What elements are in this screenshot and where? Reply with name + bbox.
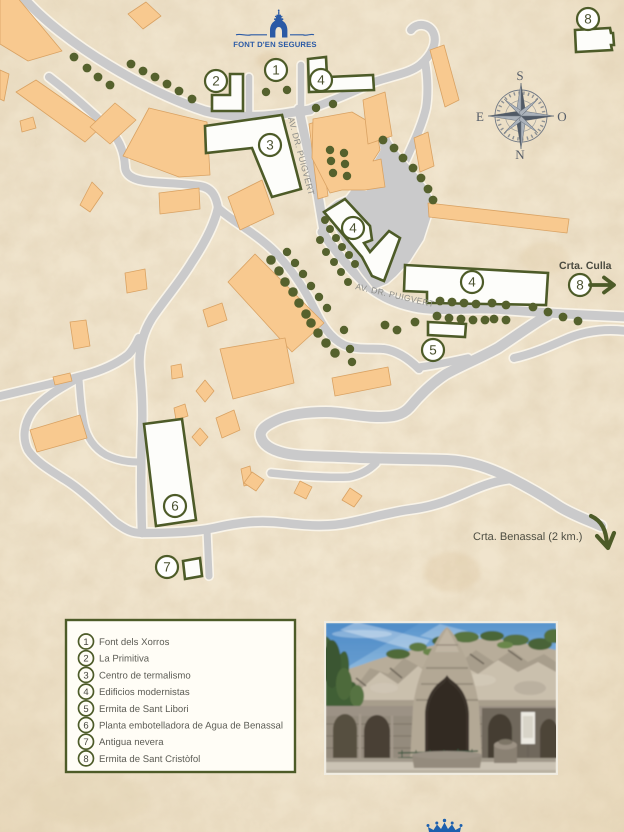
svg-text:La Primitiva: La Primitiva: [99, 654, 150, 665]
svg-text:Planta embotelladora de Agua d: Planta embotelladora de Agua de Benassal: [99, 721, 283, 732]
svg-text:Crta. Culla: Crta. Culla: [559, 260, 612, 272]
svg-text:8: 8: [576, 278, 584, 293]
svg-text:7: 7: [163, 560, 171, 575]
svg-text:Edificios modernistas: Edificios modernistas: [99, 687, 190, 698]
svg-text:7: 7: [83, 737, 88, 748]
svg-text:5: 5: [83, 704, 88, 715]
svg-text:N: N: [515, 147, 525, 162]
svg-text:Antigua nevera: Antigua nevera: [99, 737, 164, 748]
svg-text:Centro de termalismo: Centro de termalismo: [99, 670, 191, 681]
svg-text:4: 4: [317, 73, 325, 88]
svg-text:6: 6: [171, 499, 179, 514]
svg-text:Crta. Benassal (2 km.): Crta. Benassal (2 km.): [473, 531, 582, 543]
svg-text:FONT D'EN SEGURES: FONT D'EN SEGURES: [233, 40, 316, 49]
svg-text:3: 3: [266, 138, 274, 153]
svg-text:4: 4: [83, 687, 88, 698]
svg-text:2: 2: [83, 654, 88, 665]
svg-text:8: 8: [83, 754, 88, 765]
svg-text:5: 5: [429, 343, 437, 358]
svg-text:3: 3: [83, 670, 88, 681]
svg-text:4: 4: [468, 275, 476, 290]
svg-text:S: S: [516, 68, 523, 83]
svg-text:E: E: [476, 109, 484, 124]
svg-text:6: 6: [83, 721, 88, 732]
svg-text:Ermita de Sant Cristòfol: Ermita de Sant Cristòfol: [99, 754, 200, 765]
svg-text:4: 4: [349, 221, 357, 236]
svg-text:1: 1: [83, 637, 88, 648]
svg-text:8: 8: [584, 12, 592, 27]
svg-text:Font dels Xorros: Font dels Xorros: [99, 637, 170, 648]
svg-text:2: 2: [212, 74, 220, 89]
svg-text:1: 1: [272, 63, 280, 78]
svg-text:O: O: [557, 109, 566, 124]
svg-text:Ermita de Sant Libori: Ermita de Sant Libori: [99, 704, 189, 715]
